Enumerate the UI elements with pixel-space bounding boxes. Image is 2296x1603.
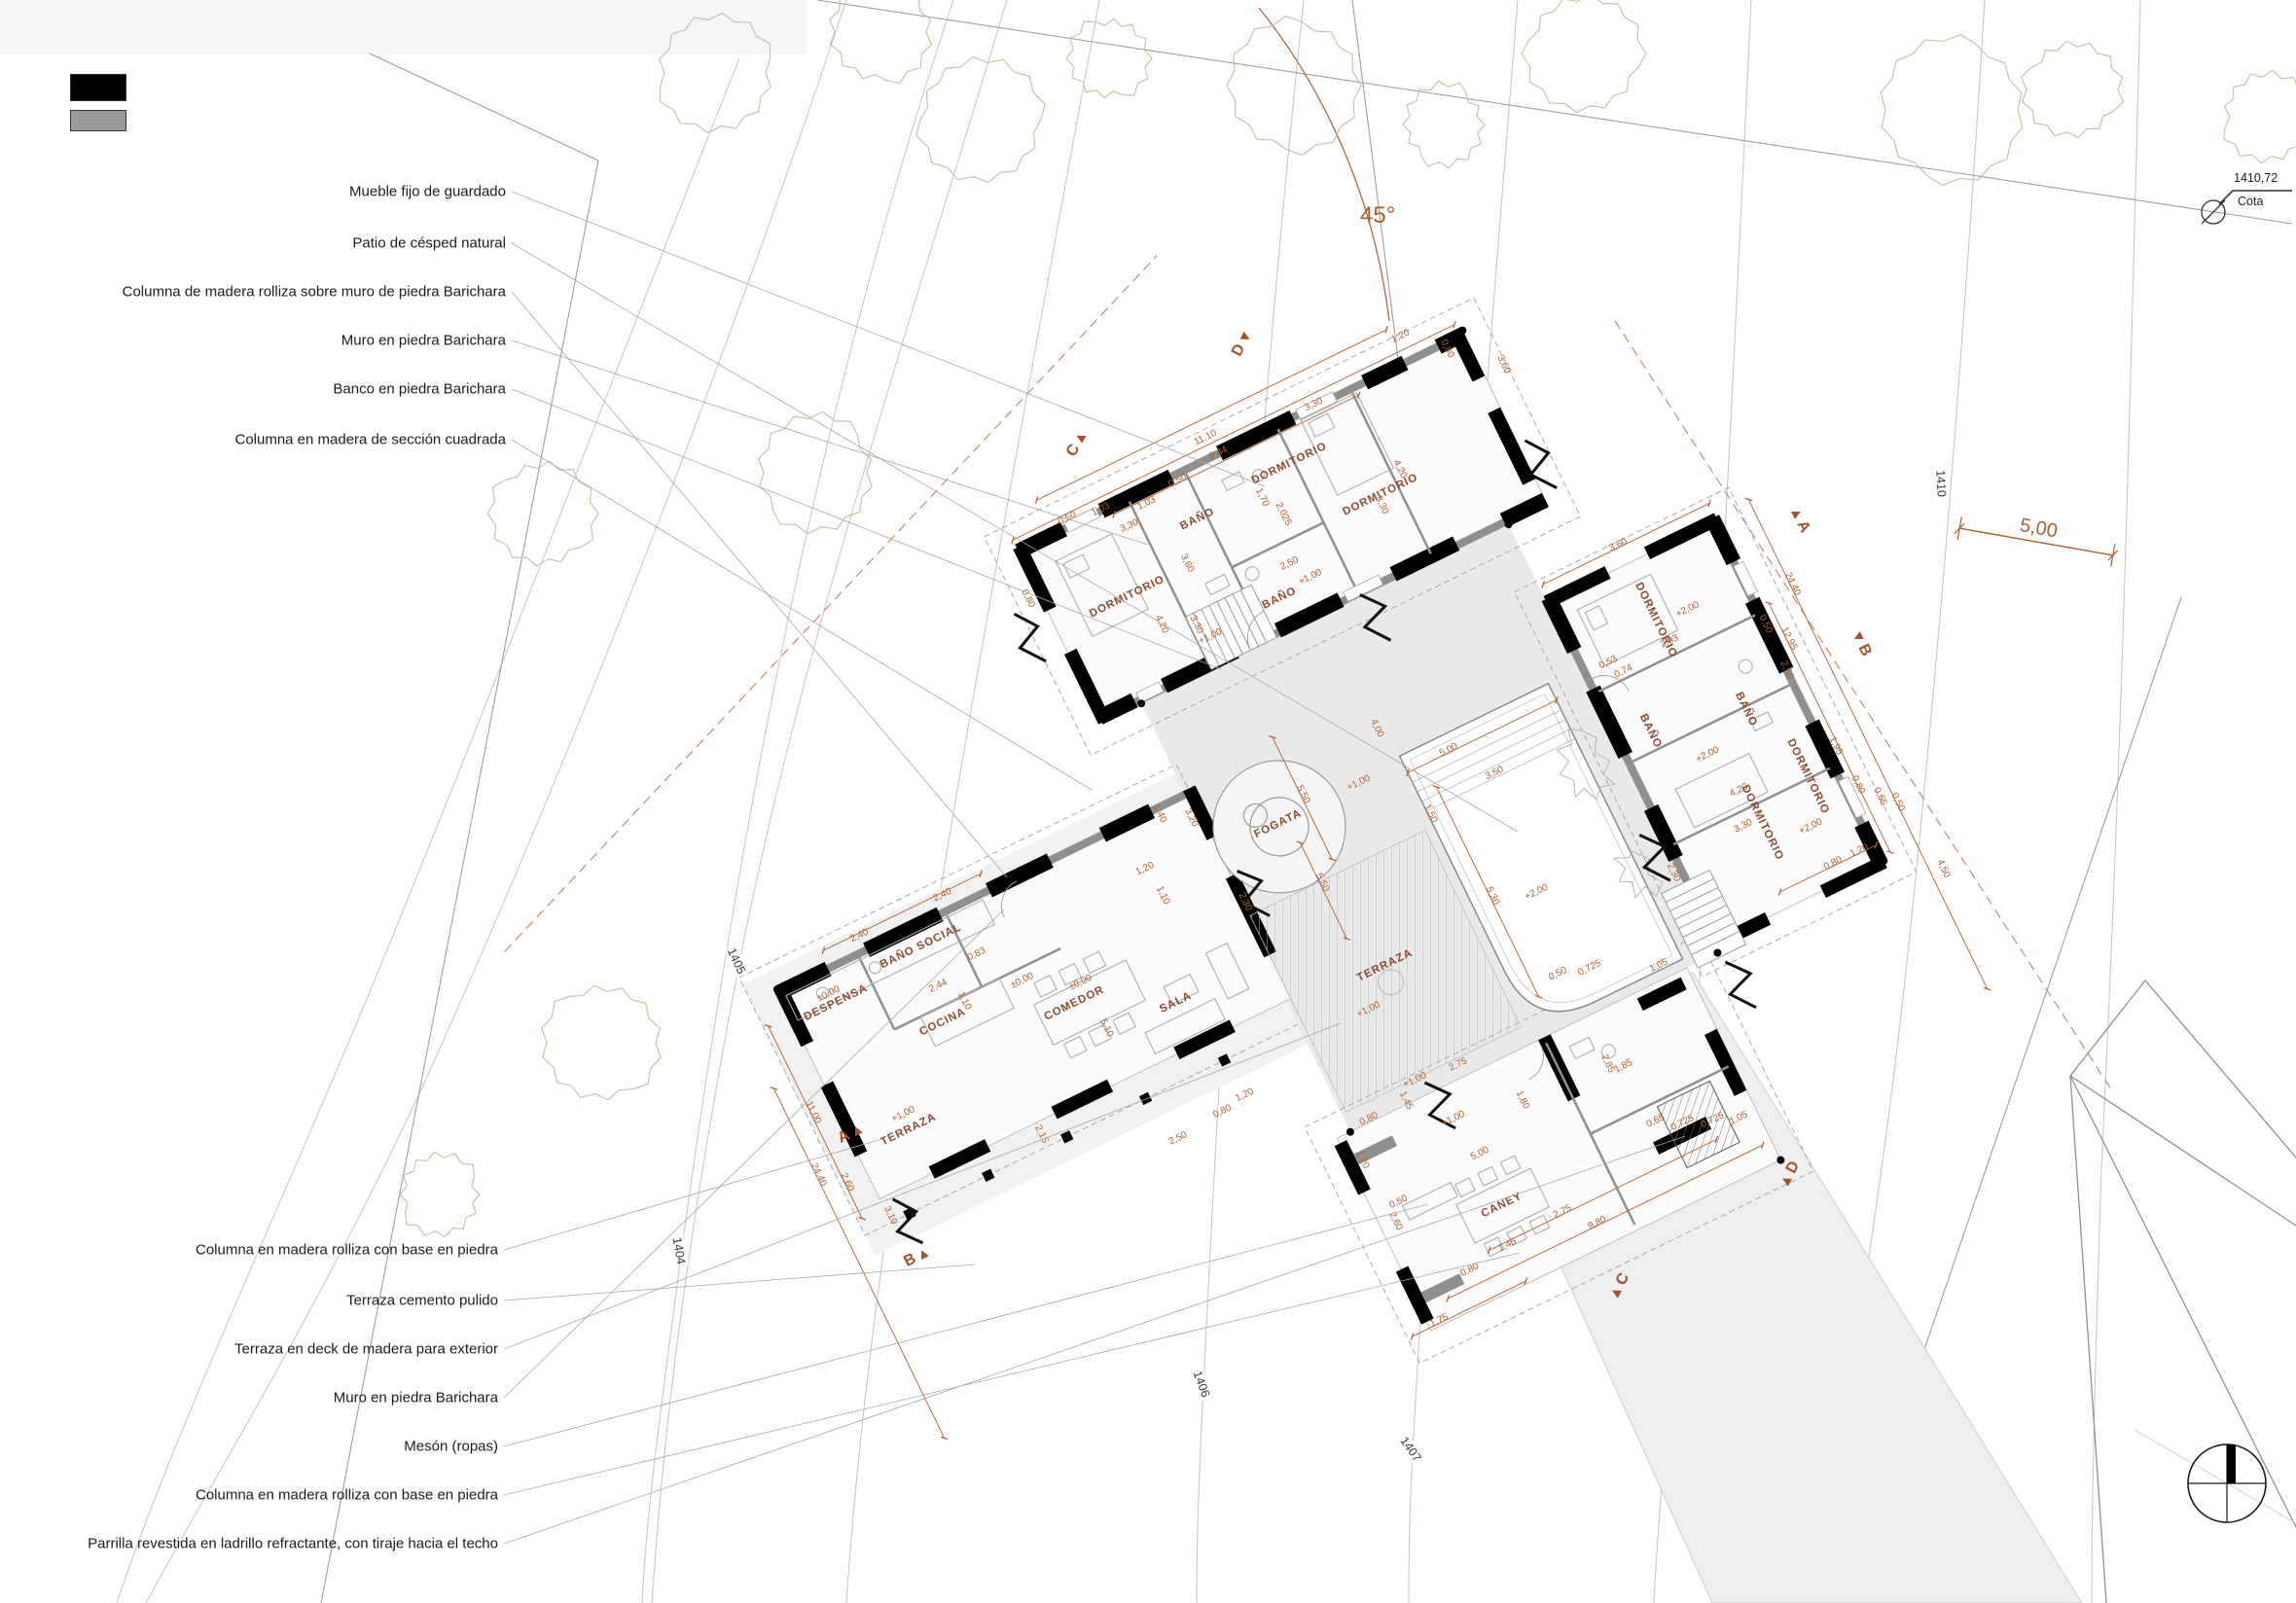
tree-canopy-icon — [916, 57, 1045, 183]
dimension-label: 24,40 — [808, 1161, 829, 1189]
dimension-label: 4,50 — [1934, 858, 1953, 880]
dimension-label: 2,50 — [1167, 1129, 1190, 1148]
tree-canopy-icon — [1066, 18, 1152, 97]
callout-leader-line — [512, 192, 1265, 486]
callout-label: Columna en madera rolliza con base en pi… — [41, 1242, 498, 1259]
tree-canopy-icon — [759, 412, 873, 534]
callout-leader-line — [504, 1204, 1428, 1446]
callout-label: Muro en piedra Barichara — [49, 333, 506, 349]
tree-canopy-icon — [542, 985, 661, 1099]
tree-canopy-icon — [1227, 17, 1361, 156]
angle-annotation: 45° — [1360, 202, 1395, 230]
contour-label: 1410 — [1933, 468, 1949, 500]
callout-label: Parrilla revestida en ladrillo refractan… — [41, 1536, 498, 1552]
cota-value: 1410,72 — [2234, 171, 2278, 187]
dimension-label: 11,10 — [1193, 428, 1219, 448]
tree-canopy-icon — [1522, 0, 1646, 113]
site-plan-page: DORMITORIOBAÑODORMITORIODORMITORIOBAÑODO… — [0, 0, 2296, 1603]
dimension-label: 0,65 — [1871, 786, 1889, 808]
survey-arc — [1259, 8, 1389, 321]
tree-canopy-icon — [400, 1152, 480, 1236]
callout-leader-line — [504, 1136, 1685, 1544]
callout-label: Banco en piedra Barichara — [49, 381, 506, 398]
dimension-label: 1,20 — [1234, 1086, 1256, 1105]
callout-label: Patio de césped natural — [49, 235, 506, 252]
scale-bar: 5,00 — [1954, 504, 2121, 568]
dimension-label: 3,60 — [1607, 536, 1630, 554]
tree-canopy-icon — [1881, 35, 2023, 186]
tree-canopy-icon — [2022, 41, 2124, 137]
callout-label: Columna en madera de sección cuadrada — [49, 432, 506, 448]
callout-label: Muro en piedra Barichara — [41, 1390, 498, 1407]
cota-label: Cota — [2238, 195, 2263, 210]
scale-value: 5,00 — [2018, 515, 2059, 542]
north-arrow-icon — [2135, 1430, 2296, 1537]
callout-leader-line — [504, 1265, 975, 1300]
callout-label: Columna de madera rolliza sobre muro de … — [49, 284, 506, 301]
dimension-label: 0,80 — [1211, 1102, 1234, 1121]
tree-canopy-icon — [1403, 81, 1485, 167]
callout-label: Columna en madera rolliza con base en pi… — [41, 1487, 498, 1504]
dimension-label: 0,50 — [1889, 791, 1908, 813]
tree-canopy-icon — [830, 0, 932, 83]
callout-label: Mesón (ropas) — [41, 1439, 498, 1455]
tree-canopy-icon — [2224, 70, 2296, 162]
tree-canopy-icon — [487, 461, 598, 565]
callout-label: Terraza en deck de madera para exterior — [41, 1341, 498, 1358]
callout-label: Terraza cemento pulido — [41, 1293, 498, 1309]
neighbour-building — [2070, 980, 2296, 1603]
tree-canopy-icon — [660, 14, 771, 133]
callout-leader-line — [504, 1140, 879, 1250]
callout-label: Mueble fijo de guardado — [49, 184, 506, 200]
callout-leader-line — [512, 340, 1148, 545]
callout-leader-line — [512, 292, 1007, 877]
callout-leader-line — [512, 440, 1092, 790]
